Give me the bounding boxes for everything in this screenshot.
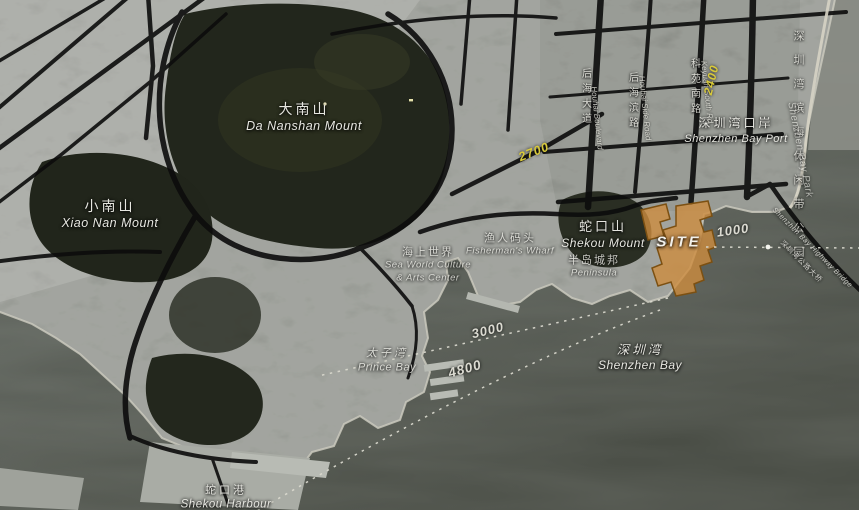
satellite-map-canvas[interactable] [0, 0, 859, 510]
bridge-marker-dot [766, 245, 771, 250]
site-analysis-map: 大南山 Da Nanshan Mount 小南山 Xiao Nan Mount … [0, 0, 859, 510]
